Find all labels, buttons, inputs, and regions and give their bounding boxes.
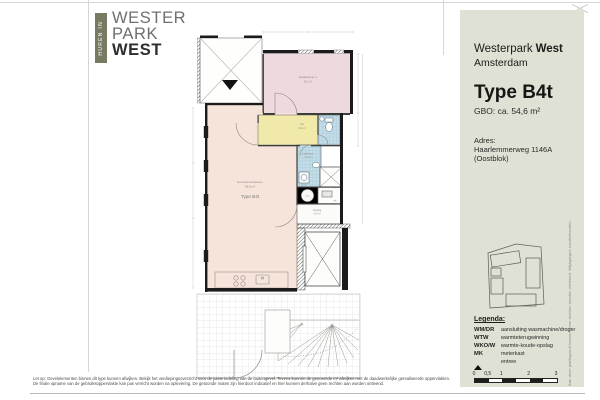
huren-in-tab: HUREN IN xyxy=(95,13,107,63)
legend-label: warmte-koude-opslag xyxy=(501,343,553,349)
left-guide-line xyxy=(88,0,89,372)
scale-bar-segments xyxy=(474,378,558,383)
legend-code: MK xyxy=(474,351,501,357)
legend-label: warmteterugwinning xyxy=(501,335,549,341)
scale-tick: 2 xyxy=(527,371,530,377)
bottom-rule xyxy=(30,393,585,394)
bathroom-area-label: 3,9 m² xyxy=(304,156,311,159)
entree-triangle-icon xyxy=(474,359,501,365)
legend-row-entree: entree xyxy=(474,358,578,366)
room-toilet xyxy=(318,115,340,145)
top-rule xyxy=(0,2,600,3)
floor-plan: slaapkamer 1 9,2 m² woonkamer/keuken 28,… xyxy=(190,28,370,380)
storage-area-label: 2,9 m² xyxy=(313,213,320,216)
logo-wordmark: WESTER PARK WEST xyxy=(112,10,186,63)
meterkast xyxy=(318,187,342,204)
legend-row: WM/DR aansluiting wasmachine/droger xyxy=(474,326,578,334)
footer-disclaimer: Let op: Gevelelementen binnen dit type k… xyxy=(33,376,457,386)
legend-label: aansluiting wasmachine/droger xyxy=(501,327,575,333)
living-name-label: woonkamer/keuken xyxy=(237,180,263,184)
huren-in-label: HUREN IN xyxy=(98,21,104,56)
scale-tick: 0,5 xyxy=(484,371,491,377)
legend-code: WKO/W xyxy=(474,343,501,349)
info-sidebar: WesterparkWest Amsterdam Type B4t GBO: c… xyxy=(460,10,584,387)
legend-label: entree xyxy=(501,359,516,365)
legend-row: WTW warmteterugwinning xyxy=(474,334,578,342)
living-type-label: Type B4t xyxy=(241,194,260,199)
project-title: WesterparkWest xyxy=(474,43,563,55)
elevator xyxy=(297,224,350,290)
vertical-disclaimer: Aan deze plattegrond kunnen geen rechten… xyxy=(567,228,572,386)
legend-title: Legenda: xyxy=(474,316,505,323)
legend: WM/DR aansluiting wasmachine/droger WTW … xyxy=(474,326,578,366)
floorplan-page: HUREN IN WESTER PARK WEST xyxy=(0,0,600,400)
project-name-bold: West xyxy=(536,43,563,55)
scale-tick: 1 xyxy=(500,371,503,377)
wall-hatch-2 xyxy=(334,50,344,53)
bedroom-name-label: slaapkamer 1 xyxy=(299,75,317,79)
bedroom-area-label: 9,2 m² xyxy=(304,80,313,84)
shaft xyxy=(320,167,342,187)
unit-type-title: Type B4t xyxy=(474,82,553,104)
logo-line-wester: WESTER xyxy=(112,10,186,26)
room-bedroom xyxy=(263,54,350,113)
legend-code: WTW xyxy=(474,335,501,341)
scale-tick: 3 xyxy=(555,371,558,377)
address-value: Haarlemmerweg 1146A (Oostblok) xyxy=(474,145,584,163)
wmdr-label: wm/dr xyxy=(301,184,307,187)
wtw-label: wtw xyxy=(306,195,310,198)
legend-row: WKO/W warmte-koude-opslag xyxy=(474,342,578,350)
room-hall xyxy=(258,115,320,145)
void-balcony xyxy=(198,36,263,104)
room-bathroom xyxy=(297,145,321,187)
logo-line-west: WEST xyxy=(112,42,186,58)
hall-area-label: 3,6 m² xyxy=(298,126,305,130)
stair-landing xyxy=(265,310,290,353)
address-label: Adres: xyxy=(474,136,496,145)
living-area-label: 28,0 m² xyxy=(245,185,255,189)
project-city: Amsterdam xyxy=(474,57,528,69)
site-plan-thumbnail xyxy=(483,240,549,310)
legend-label: meterkast xyxy=(501,351,525,357)
logo-line-park: PARK xyxy=(112,26,186,42)
scale-tick: 0 xyxy=(473,371,476,377)
scale-bar: 0 0,5 1 2 3 xyxy=(474,371,556,385)
legend-code: WM/DR xyxy=(474,327,501,333)
gbo-area: GBO: ca. 54,6 m² xyxy=(474,106,540,116)
hall-name-label: hal xyxy=(300,122,304,126)
brand-logo: HUREN IN WESTER PARK WEST xyxy=(95,13,186,63)
legend-row: MK meterkast xyxy=(474,350,578,358)
project-name-regular: Westerpark xyxy=(474,43,533,55)
footer-line-2: De finale opname van de gebruiksoppervla… xyxy=(33,381,457,386)
right-guide-line xyxy=(443,0,444,55)
wall-hatch-1 xyxy=(298,50,314,53)
